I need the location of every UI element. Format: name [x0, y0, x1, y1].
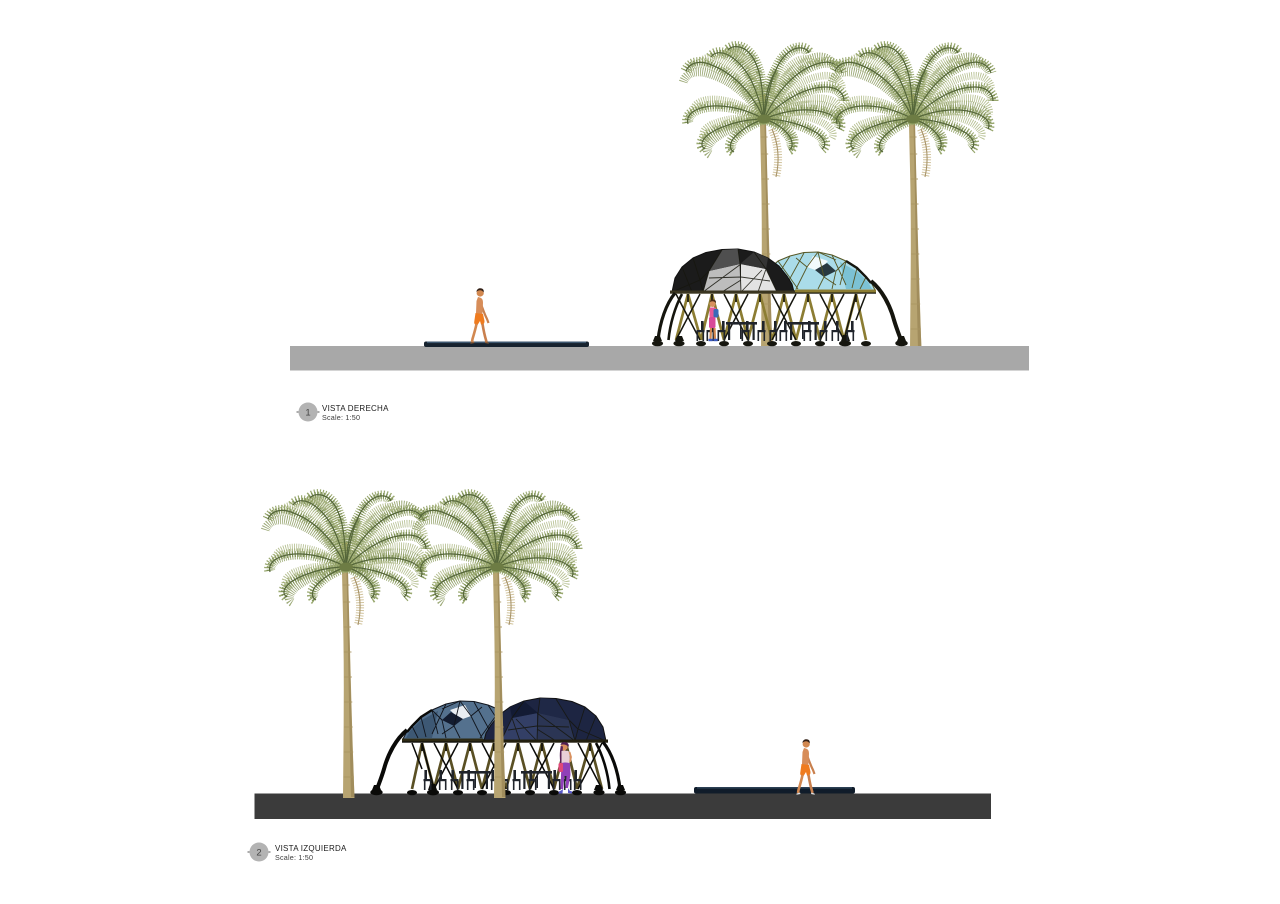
svg-text:Scale: 1:50: Scale: 1:50	[275, 853, 313, 862]
svg-text:VISTA IZQUIERDA: VISTA IZQUIERDA	[275, 844, 347, 853]
svg-text:2: 2	[256, 848, 261, 859]
svg-text:Scale: 1:50: Scale: 1:50	[322, 413, 360, 422]
svg-text:VISTA DERECHA: VISTA DERECHA	[322, 404, 389, 413]
svg-text:1: 1	[305, 408, 310, 419]
